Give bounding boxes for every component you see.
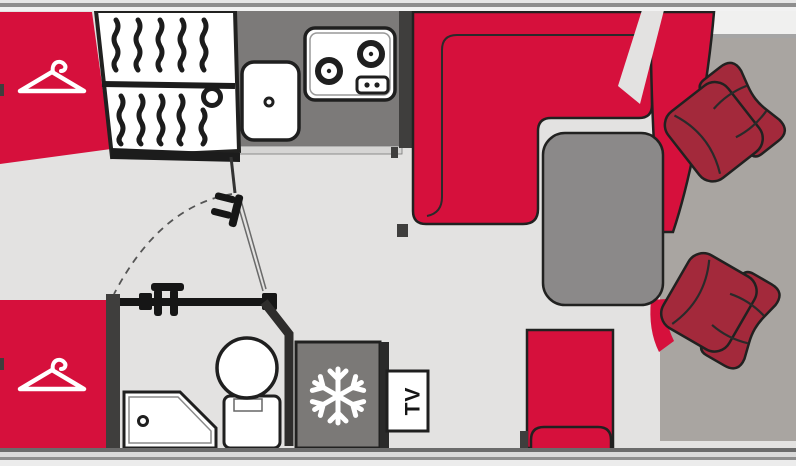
hob: [305, 28, 395, 100]
drain-icon: [265, 98, 273, 106]
wall-tick: [0, 84, 4, 96]
table: [543, 133, 663, 305]
wall-tick: [0, 358, 4, 370]
vehicle-wall-bottom: [0, 448, 796, 466]
tv-box: TV: [387, 371, 428, 431]
sink: [242, 62, 299, 140]
wardrobe-rear: [0, 300, 106, 448]
door-lock-icon: [204, 89, 221, 106]
wardrobe-front: [0, 12, 111, 164]
floorplan-page: TV: [0, 0, 796, 466]
hob-control-panel: [357, 77, 388, 93]
wall-stub: [397, 224, 408, 237]
kitchen-wall: [399, 11, 412, 148]
bathroom-left-wall: [106, 294, 120, 448]
tv-label: TV: [402, 387, 425, 416]
floorplan-canvas: TV: [0, 0, 796, 466]
entry-door: [96, 11, 240, 162]
wall-stub: [391, 147, 398, 158]
travel-seat: [520, 330, 613, 451]
fridge: [296, 342, 380, 448]
vehicle-wall-top: [0, 0, 796, 11]
drain-icon: [139, 417, 148, 426]
